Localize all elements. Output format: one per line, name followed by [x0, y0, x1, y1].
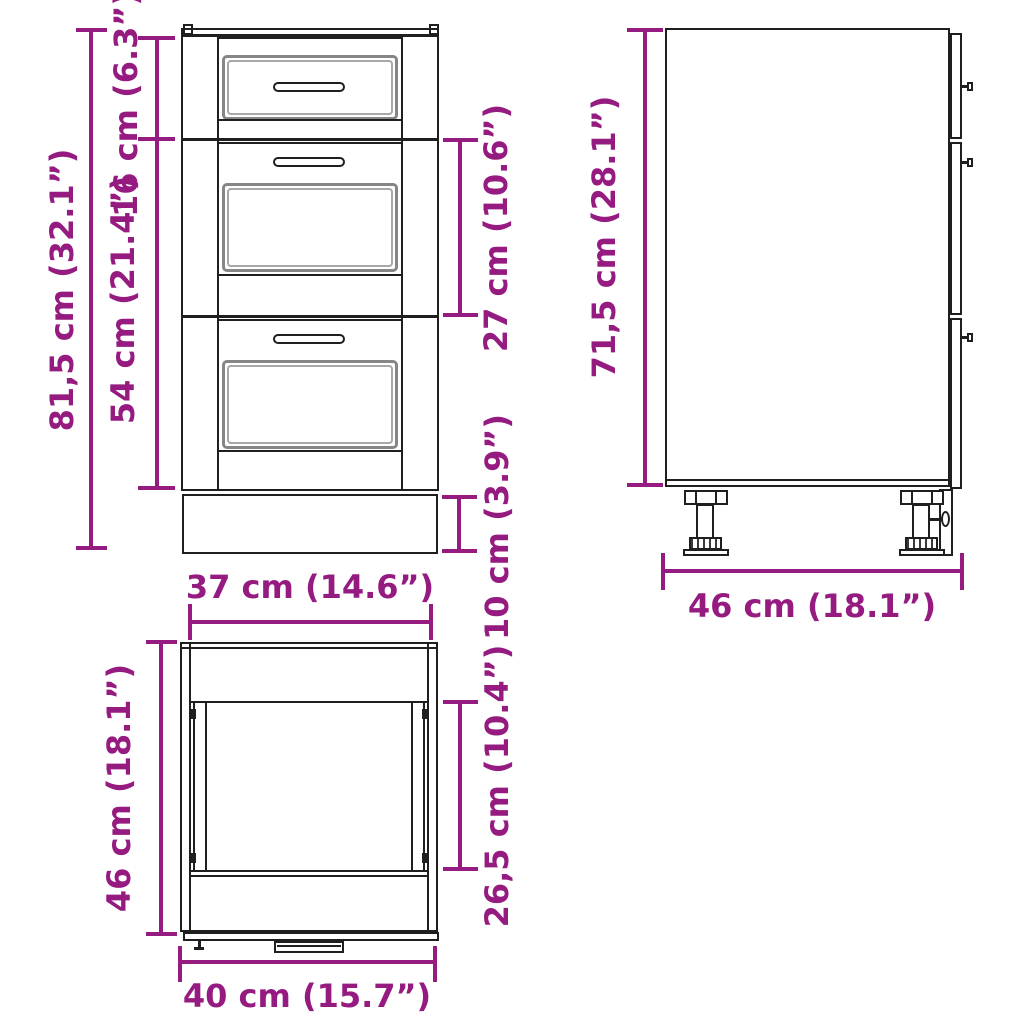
- left-foot-plate-facet-1: [695, 492, 697, 504]
- dim-lower-drawers-label: 54 cm (21.4”): [107, 176, 139, 424]
- drawer1-bottom-line: [219, 119, 401, 121]
- dim-plinth-label: 10 cm (3.9”): [481, 414, 513, 640]
- side-panel: [665, 28, 950, 487]
- dim-plinth-cap-top: [442, 495, 477, 499]
- dim-plinth-line: [457, 497, 461, 553]
- dim-inner-width-label: 37 cm (14.6”): [186, 571, 434, 603]
- cabinet-dimension-diagram: 81,5 cm (32.1”) 16 cm (6.3”) 54 cm (21.4…: [0, 0, 1024, 1024]
- dim-body-height-cap-bottom: [627, 483, 663, 487]
- dim-total-height-label: 81,5 cm (32.1”): [46, 149, 78, 432]
- top-view-right-wall: [427, 644, 429, 931]
- countertop-corner-tab-left: [183, 24, 193, 35]
- dim-inner-width-cap-left: [188, 604, 192, 640]
- drawer-front-edge-right: [401, 37, 403, 489]
- drawer-divider-1: [181, 138, 439, 141]
- left-foot-leg: [696, 504, 714, 539]
- drawer3-top-line: [219, 319, 401, 321]
- drawer2-handle: [273, 157, 345, 167]
- right-foot-plate-facet-1: [911, 492, 913, 504]
- dim-outer-width-cap-right: [433, 946, 437, 982]
- side-drawer2-front: [950, 142, 962, 315]
- side-drawer3-front: [950, 318, 962, 489]
- dim-inner-depth-line: [458, 702, 462, 871]
- right-foot-mount-plate: [900, 490, 944, 505]
- left-foot-mount-plate: [684, 490, 728, 505]
- dim-total-height-line: [89, 30, 93, 550]
- dim-side-depth-label: 46 cm (18.1”): [688, 590, 936, 622]
- right-foot-plate-facet-2: [931, 492, 933, 504]
- dim-outer-width-line: [180, 960, 436, 964]
- right-drawer-slide-outer: [423, 703, 425, 871]
- dim-inner-depth-label: 26,5 cm (10.4”): [481, 645, 513, 928]
- dim-middle-drawer-cap-bottom: [443, 313, 478, 317]
- drawer1-handle: [273, 82, 345, 92]
- dim-total-height-cap-bottom: [76, 546, 107, 550]
- dim-body-height-line: [643, 30, 647, 487]
- side-bottom-panel-line: [667, 479, 948, 481]
- left-foot-base: [683, 549, 729, 556]
- dim-depth-label: 46 cm (18.1”): [103, 664, 135, 912]
- dim-middle-drawer-cap-top: [443, 138, 478, 142]
- drawer3-bottom-line: [219, 450, 401, 452]
- top-view-handle-inner-line: [277, 945, 341, 947]
- dim-middle-drawer-label: 27 cm (10.6”): [480, 104, 512, 352]
- left-slide-clip-front: [191, 853, 196, 863]
- dim-depth-line: [159, 642, 163, 936]
- left-slide-clip-back: [191, 709, 196, 719]
- dim-middle-drawer-line: [458, 140, 462, 316]
- left-foot-plate-facet-2: [715, 492, 717, 504]
- drawer2-panel-inner: [227, 188, 393, 267]
- dim-total-height-cap-top: [76, 28, 107, 32]
- top-view-handle: [274, 941, 344, 953]
- dim-side-depth-line: [663, 569, 962, 573]
- dim-drawer-split-cap-bottom: [138, 486, 175, 490]
- drawer-front-edge-left: [217, 37, 219, 489]
- dim-outer-width-label: 40 cm (15.7”): [183, 980, 431, 1012]
- left-drawer-slide-inner: [205, 703, 207, 871]
- top-view-back-inner-line: [182, 647, 436, 649]
- drawer3-handle: [273, 334, 345, 344]
- dim-depth-cap-bottom: [146, 932, 177, 936]
- top-view-outline: [180, 642, 438, 932]
- plinth: [182, 494, 438, 554]
- dim-inner-depth-cap-bottom: [443, 867, 478, 871]
- dim-body-height-cap-top: [627, 28, 663, 32]
- top-view-front-edge-strip: [183, 932, 439, 941]
- dim-inner-width-line: [190, 620, 432, 624]
- drawer2-bottom-line: [219, 274, 401, 276]
- top-view-screw-head: [194, 947, 204, 950]
- countertop-corner-tab-right: [429, 24, 439, 35]
- drawer-divider-2: [181, 315, 439, 318]
- side-handle2-screw-head: [967, 158, 973, 167]
- top-view-interior-front-line: [191, 870, 427, 872]
- right-foot-base: [899, 549, 945, 556]
- top-view-interior-back-line: [191, 701, 427, 703]
- dim-depth-cap-top: [146, 640, 177, 644]
- drawer2-top-line: [219, 142, 401, 144]
- right-foot-leg: [912, 504, 930, 539]
- dim-side-depth-cap-right: [960, 553, 964, 590]
- dim-drawer-split-line: [155, 38, 159, 490]
- dim-inner-depth-cap-top: [443, 700, 478, 704]
- top-view-front-rail-line: [191, 875, 427, 877]
- left-drawer-slide-outer: [193, 703, 195, 871]
- dim-body-height-label: 71,5 cm (28.1”): [588, 96, 620, 379]
- drawer1-top-line: [219, 37, 401, 39]
- right-slide-clip-front: [422, 853, 427, 863]
- dim-side-depth-cap-left: [661, 553, 665, 590]
- drawer3-panel-inner: [227, 365, 393, 444]
- side-handle1-screw-head: [967, 82, 973, 91]
- right-slide-clip-back: [422, 709, 427, 719]
- right-drawer-slide-inner: [411, 703, 413, 871]
- dim-plinth-cap-bottom: [442, 549, 477, 553]
- side-handle3-screw-head: [967, 333, 973, 342]
- right-foot-adjuster-knob: [941, 511, 950, 527]
- dim-inner-width-cap-right: [429, 604, 433, 640]
- top-view-left-wall: [189, 644, 191, 931]
- dim-outer-width-cap-left: [178, 946, 182, 982]
